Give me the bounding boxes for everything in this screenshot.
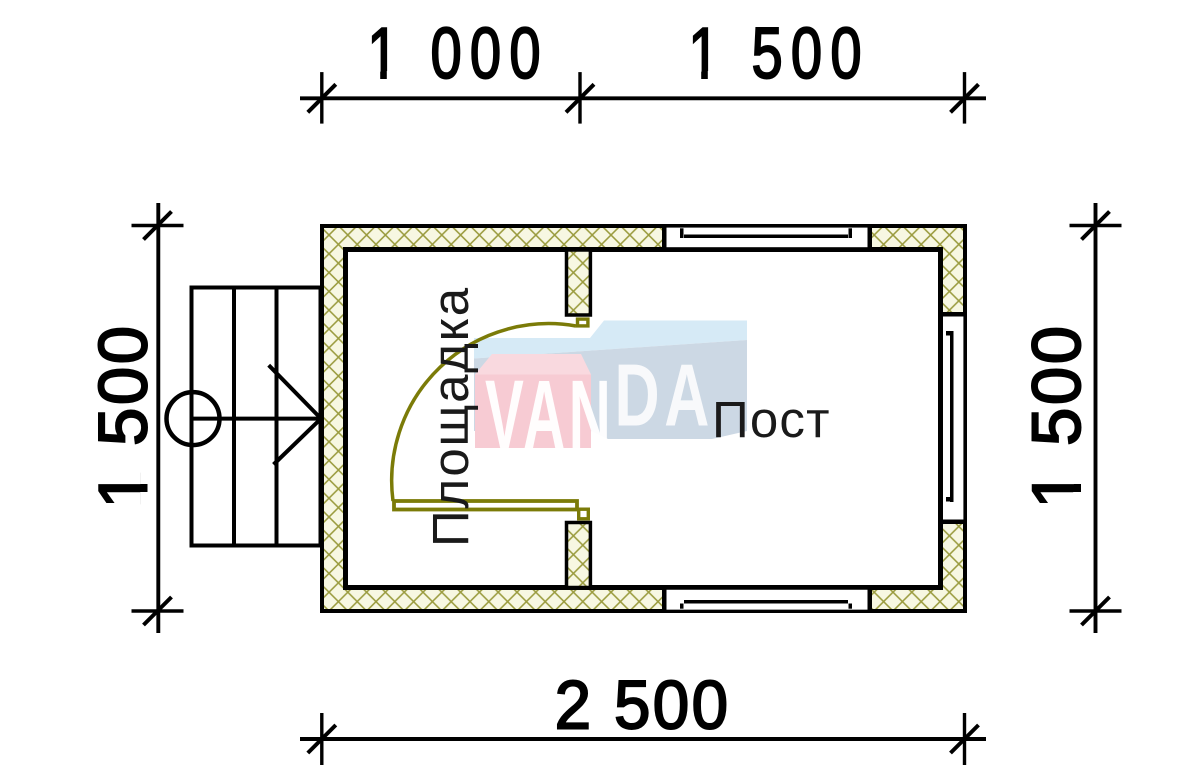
svg-text:1 000: 1 000 [367,13,548,93]
svg-text:VAN: VAN [485,361,614,469]
svg-text:Площадка: Площадка [422,286,479,547]
svg-text:DA: DA [615,347,714,445]
svg-text:2 500: 2 500 [555,667,731,744]
svg-text:1 500: 1 500 [85,323,162,508]
svg-text:1 500: 1 500 [1018,323,1095,508]
svg-text:Пост: Пост [712,391,831,448]
svg-text:1 500: 1 500 [688,13,869,93]
